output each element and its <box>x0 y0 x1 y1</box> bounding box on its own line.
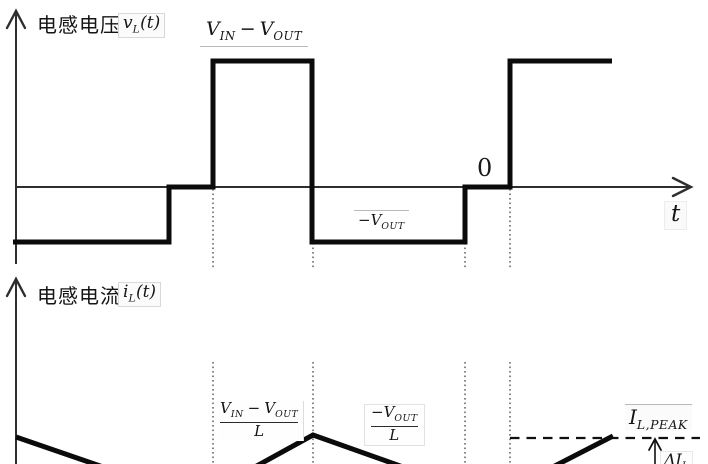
time-axis-label: t <box>664 201 687 230</box>
falling-slope-label: −VOUT L <box>364 404 425 446</box>
plot-canvas <box>0 0 708 464</box>
inductor-voltage-waveform <box>13 61 612 242</box>
voltage-signal-label: vL(t) <box>118 13 165 38</box>
current-signal-label: iL(t) <box>118 282 161 307</box>
voltage-plot-title: 电感电压 <box>37 15 121 36</box>
peak-current-label: IL,PEAK <box>625 404 692 431</box>
origin-zero-label: 0 <box>477 156 492 181</box>
rising-slope-label: VIN−VOUT L <box>218 401 304 441</box>
voltage-low-level-label: −VOUT <box>354 210 409 232</box>
waveform-figure: 电感电压 vL(t) VIN−VOUT −VOUT 0 t 电感电流 iL(t)… <box>0 0 708 464</box>
inductor-current-waveform <box>16 435 613 464</box>
current-plot-title: 电感电流 <box>37 286 121 307</box>
ripple-current-label: ΔIL <box>660 451 693 464</box>
voltage-high-level-label: VIN−VOUT <box>200 20 308 47</box>
waveform-layer <box>13 61 700 464</box>
